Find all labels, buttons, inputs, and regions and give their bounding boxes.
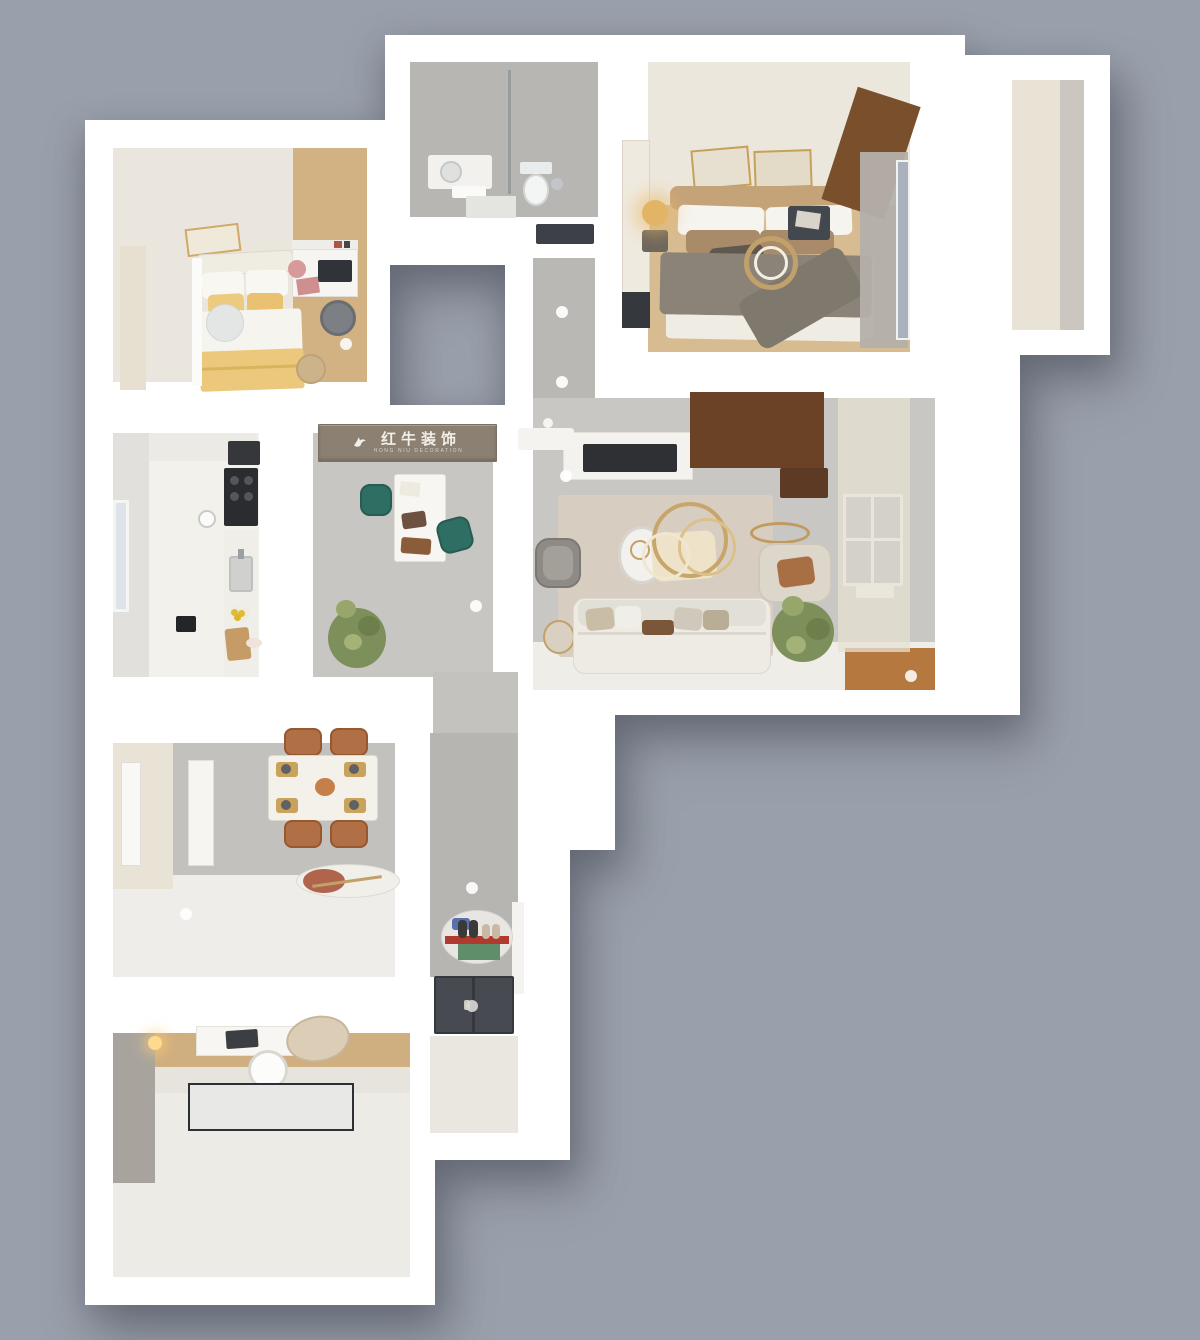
diningmulti-snacks bbox=[401, 510, 427, 529]
brand-name-en: HONG NIU DECORATION bbox=[374, 449, 464, 454]
living-sheer-curtain bbox=[838, 398, 910, 652]
kitchen-faucet bbox=[238, 549, 244, 559]
master-lamp bbox=[642, 200, 668, 226]
brand-name-cn: 红牛装饰 bbox=[376, 432, 461, 447]
master-book bbox=[795, 210, 821, 229]
diningmulti-plant-leaf-1 bbox=[336, 600, 356, 618]
bedroom2-laptop bbox=[318, 260, 352, 282]
kitchen-clock bbox=[198, 510, 216, 528]
bath-toilet-bowl bbox=[523, 174, 549, 206]
diningroom-chair-4 bbox=[330, 820, 368, 848]
bath-partition bbox=[466, 196, 516, 218]
bath-toilet-tank bbox=[520, 162, 552, 174]
spotlight-living-3 bbox=[543, 418, 553, 428]
sofa-cushion-pattern bbox=[673, 607, 703, 631]
entry-shoe-right bbox=[469, 920, 478, 938]
kitchen-burner-2 bbox=[244, 476, 253, 485]
bull-logo-icon bbox=[352, 435, 368, 451]
spotlight-bathhall-2 bbox=[556, 376, 568, 388]
master-window bbox=[896, 160, 910, 340]
living-side-table bbox=[543, 620, 575, 654]
spotlight-living-1 bbox=[560, 470, 572, 482]
diningmulti-tray bbox=[400, 537, 431, 555]
diningroom-chair-3 bbox=[284, 820, 322, 848]
entry-shoe-left bbox=[458, 920, 467, 938]
study-rug bbox=[282, 1011, 353, 1067]
sofa-cushion-white bbox=[615, 606, 641, 628]
diningroom-plate-1 bbox=[281, 764, 291, 774]
entry-slipper-right bbox=[492, 924, 500, 939]
living-lounge-seat bbox=[543, 546, 573, 580]
hall-bench bbox=[518, 428, 574, 450]
diningroom-sideboard bbox=[188, 760, 214, 866]
bedroom2-bed-rail bbox=[192, 258, 202, 386]
master-nightstand-left bbox=[642, 230, 668, 252]
master-ring-decor-inner bbox=[754, 246, 788, 280]
living-plant-leaf-1 bbox=[782, 596, 804, 616]
bath-shower-head bbox=[551, 178, 563, 190]
diningroom-plate-2 bbox=[281, 800, 291, 810]
diningroom-window bbox=[121, 762, 141, 866]
bedroom2-book-dark bbox=[344, 241, 350, 248]
diningroom-plate-4 bbox=[349, 800, 359, 810]
diningmulti-chair-green-1 bbox=[360, 484, 392, 516]
sofa-cushion-tan bbox=[703, 610, 729, 630]
sofa-cushion-beige bbox=[585, 607, 615, 632]
spotlight-diningmulti bbox=[470, 600, 482, 612]
bedroom2-stool-pink bbox=[288, 260, 306, 278]
kitchen-sink bbox=[229, 556, 253, 592]
spotlight-living-2 bbox=[905, 670, 917, 682]
spotlight-corridor-2 bbox=[466, 1000, 478, 1012]
entry-slipper-left bbox=[482, 924, 490, 939]
diningmulti-plant-leaf-3 bbox=[344, 634, 362, 650]
spotlight-bedroom2 bbox=[340, 338, 352, 350]
living-cabinet-dark bbox=[780, 468, 828, 498]
diningroom-centerpiece bbox=[315, 778, 335, 796]
living-plant-leaf-2 bbox=[806, 618, 830, 640]
diningroom-plate-3 bbox=[349, 764, 359, 774]
living-sideboard-glass bbox=[583, 444, 677, 472]
chandelier-ring-3 bbox=[642, 532, 690, 580]
furniture-layer bbox=[0, 0, 1200, 1340]
diningroom-chair-1 bbox=[284, 728, 322, 756]
living-armchair-pillow bbox=[776, 556, 816, 589]
living-deer-sculpture bbox=[750, 522, 810, 544]
entry-rug-red-stripe bbox=[445, 936, 509, 944]
living-plant-leaf-3 bbox=[786, 636, 806, 654]
master-frame-left bbox=[690, 146, 751, 191]
kitchen-burner-1 bbox=[230, 476, 239, 485]
kitchen-intercom bbox=[176, 616, 196, 632]
bedroom2-book-pink bbox=[296, 277, 320, 296]
bedroom2-curtain bbox=[120, 246, 146, 390]
brand-watermark-banner: 红牛装饰 HONG NIU DECORATION bbox=[318, 424, 497, 462]
bath-basin bbox=[440, 161, 462, 183]
master-tv bbox=[622, 292, 650, 328]
bedroom2-office-chair bbox=[320, 300, 356, 336]
spotlight-corridor-1 bbox=[466, 882, 478, 894]
diningmulti-plant-leaf-2 bbox=[358, 616, 380, 636]
kitchen-burner-3 bbox=[230, 492, 239, 501]
diningmulti-papers bbox=[399, 481, 420, 497]
kitchen-plate bbox=[246, 638, 262, 648]
entry-rug-green bbox=[458, 944, 500, 960]
spotlight-bathhall-1 bbox=[556, 306, 568, 318]
kitchen-hood bbox=[228, 441, 260, 465]
kitchen-lemon-3 bbox=[234, 614, 241, 621]
kitchen-window bbox=[113, 500, 129, 612]
bath-glass-divider bbox=[508, 70, 511, 194]
study-laptop bbox=[225, 1029, 258, 1049]
master-frame-right bbox=[753, 149, 812, 189]
study-warm-light bbox=[148, 1036, 162, 1050]
diningroom-chair-2 bbox=[330, 728, 368, 756]
spotlight-diningroom bbox=[180, 908, 192, 920]
bathroom-door bbox=[536, 224, 594, 244]
bedroom2-round-cushion bbox=[206, 304, 244, 342]
living-grille bbox=[700, 424, 808, 464]
bedroom2-rattan-pouf bbox=[296, 354, 326, 384]
sofa-tray-brown bbox=[642, 620, 674, 635]
floor-plan-stage: 红牛装饰 HONG NIU DECORATION bbox=[0, 0, 1200, 1340]
study-glass-wardrobe bbox=[188, 1083, 354, 1131]
bedroom2-book-red bbox=[334, 241, 342, 248]
kitchen-burner-4 bbox=[244, 492, 253, 501]
